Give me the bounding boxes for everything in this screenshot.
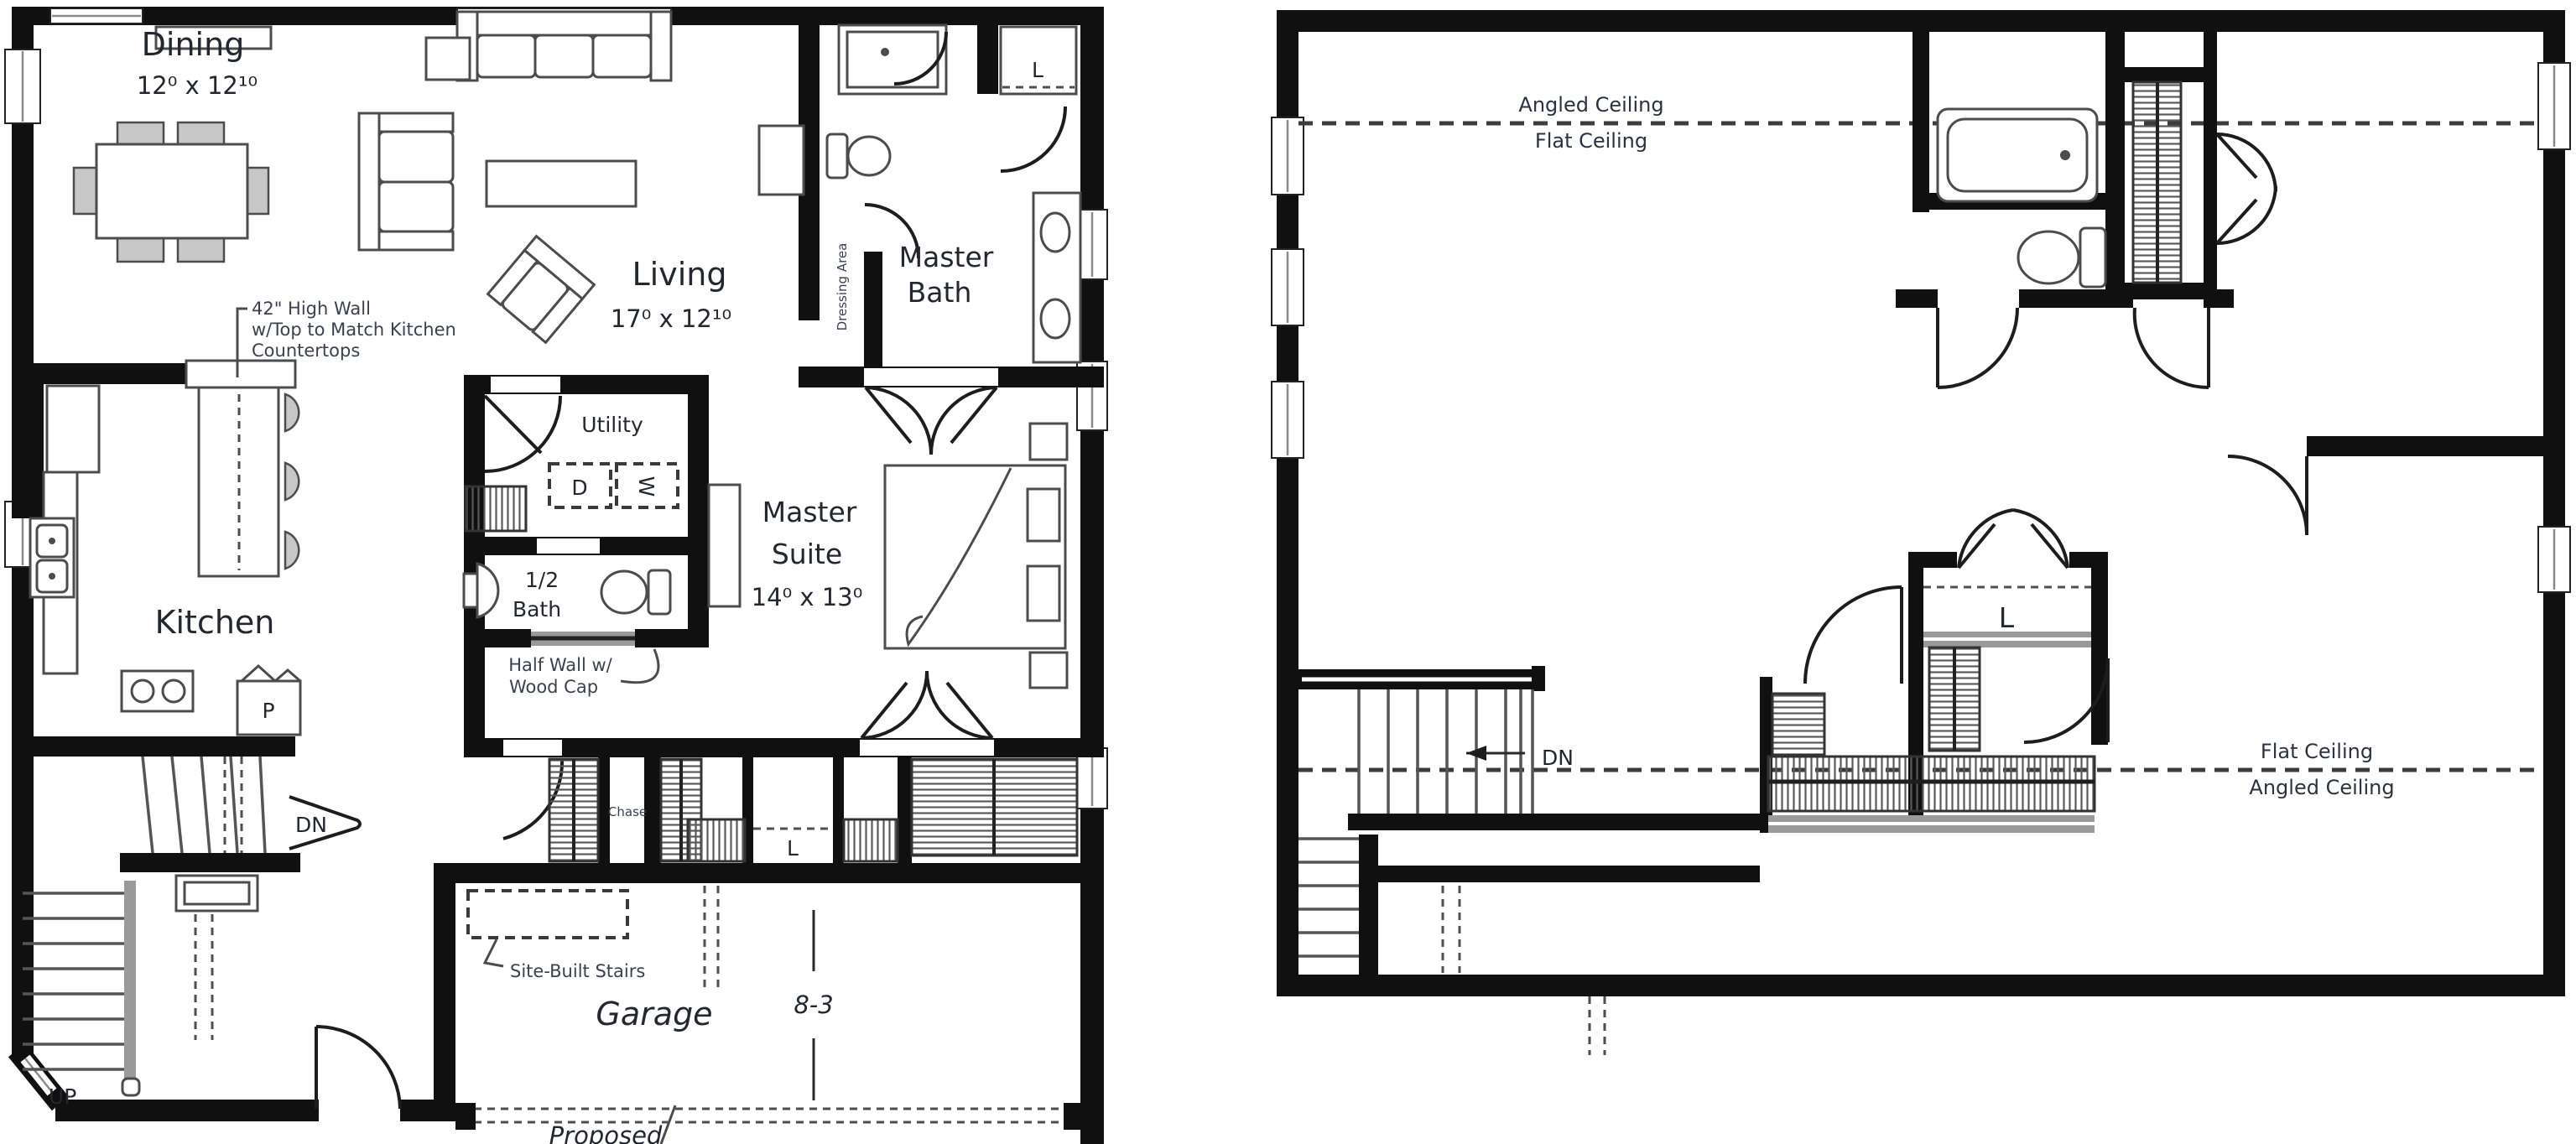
sofa [457,12,671,81]
kitchen-island [186,361,299,576]
bathtub [1938,109,2097,201]
ceiling-top-below: Flat Ceiling [1535,129,1647,153]
half-wall-note-2: Wood Cap [509,677,598,697]
window-left-dining [5,49,40,123]
sf-bedroom-door [2228,456,2307,535]
shower [839,25,946,94]
stairs-dn-label: DN [295,813,327,837]
sf-window-left-1 [1272,117,1304,195]
sf-toilet [2018,228,2105,287]
site-stairs-note: Site-Built Stairs [510,961,645,981]
kitchen-sink [30,518,74,597]
garage-dim: 8-3 [794,991,833,1019]
ceiling-bottom-below: Angled Ceiling [2249,776,2394,799]
range [122,671,193,711]
master-bath-label-1: Master [899,241,994,273]
sf-window-left-2 [1272,249,1304,325]
bar-stool-3 [285,532,299,569]
stairs-entry: DN UP [23,757,400,1109]
bar-stool-1 [285,394,299,431]
sf-closet-hatch-2 [1772,694,1824,755]
garage-label: Garage [596,996,712,1032]
bar-stool-2 [285,463,299,500]
dining-label: Dining [142,26,245,63]
master-bath-label-2: Bath [908,276,972,309]
living-dims: 17⁰ x 12¹⁰ [611,304,731,333]
washer-label: W [634,476,658,497]
proposed-label: Proposed [549,1121,663,1144]
half-wall-note-1: Half Wall w/ [508,655,612,675]
sf-dn-label: DN [1542,746,1574,770]
first-floor-plan: Dining 12⁰ x 12¹⁰ Living 17⁰ [5,7,1107,1144]
sf-right-room [2228,436,2543,535]
refrigerator [47,386,99,472]
coffee-table [487,161,636,206]
site-stairs-leader [485,939,503,966]
media-console [759,126,804,195]
room-dining: Dining 12⁰ x 12¹⁰ [74,26,271,262]
half-bath-label-1: 1/2 [525,568,559,592]
sf-closet-door [2135,308,2209,387]
bed [885,465,1065,648]
room-garage: Site-Built Stairs Garage 8-3 Proposed [455,886,1104,1144]
site-stairs-outline [468,891,627,938]
living-label: Living [632,256,727,293]
half-wall-leader [621,649,658,683]
toilet [827,134,890,178]
sf-center-block: L [1760,510,2108,833]
sf-bath-door [1938,308,2017,387]
stairs-down: DN [143,757,360,853]
high-wall-note-3: Countertops [252,341,360,361]
dining-dims: 12⁰ x 12¹⁰ [137,71,258,100]
sf-window-right-2 [2538,527,2570,592]
master-suite-dims: 14⁰ x 13⁰ [752,583,863,611]
dining-table [96,144,247,238]
stairs-up: UP [23,881,212,1109]
room-living: Living 17⁰ x 12¹⁰ [359,12,804,342]
half-bath-label-2: Bath [513,597,561,621]
vanity-double-sink [1033,193,1080,362]
high-wall-note-2: w/Top to Match Kitchen [252,320,456,340]
sf-window-left-3 [1272,382,1304,458]
sf-linen-double-doors [1959,510,2068,568]
ceiling-bottom-above: Flat Ceiling [2261,740,2373,763]
stairs-up-label: UP [49,1084,76,1109]
floorplan-page: Dining 12⁰ x 12¹⁰ Living 17⁰ [0,0,2576,1144]
chase-label: Chase [608,804,647,819]
sf-closet-door-left [1805,587,1902,684]
high-wall-note-1: 42" High Wall [252,299,371,319]
room-utility: D W Utility [466,396,678,531]
utility-label: Utility [581,413,643,437]
window-top-dining [50,8,143,23]
pantry-label: P [262,699,274,723]
sf-linen-label: L [1999,601,2015,634]
utility-closet-hatch [466,486,526,531]
linen-label: L [787,836,799,861]
sf-window-right-1 [2538,63,2570,149]
sf-stairwell: DN [1298,666,1760,1055]
nightstand-1 [1030,424,1067,460]
room-master-suite: Master Suite 14⁰ x 13⁰ [709,387,1067,738]
closet-row: Chase L [503,759,1077,861]
half-bath-toilet [601,570,670,614]
floorplan-canvas: Dining 12⁰ x 12¹⁰ Living 17⁰ [0,0,2576,1144]
proposed-leader [661,1105,675,1144]
accent-chair [488,237,595,343]
sf-double-doors-right [2217,134,2276,243]
nightstand-2 [1030,653,1067,688]
master-suite-label-1: Master [762,496,857,528]
dresser [709,485,740,606]
dryer-label: D [571,476,587,500]
sf-bathroom [1896,19,2276,387]
end-table [426,38,470,80]
suite-double-doors-top [866,387,997,455]
entry-bench [176,876,258,911]
ceiling-top-above: Angled Ceiling [1518,93,1663,117]
bath-linen-label: L [1032,58,1043,82]
kitchen-label: Kitchen [155,604,275,641]
master-suite-label-2: Suite [772,538,842,570]
loveseat [359,113,453,250]
entry-door [316,1027,400,1109]
second-floor-plan: Angled Ceiling Flat Ceiling Flat Ceiling… [1272,10,2570,1055]
dressing-area-label: Dressing Area [835,243,850,331]
pantry: P [237,666,300,735]
suite-double-doors-bottom [861,671,992,738]
dining-table-set [74,122,268,262]
bath-linen-closet: L [1001,27,1076,171]
